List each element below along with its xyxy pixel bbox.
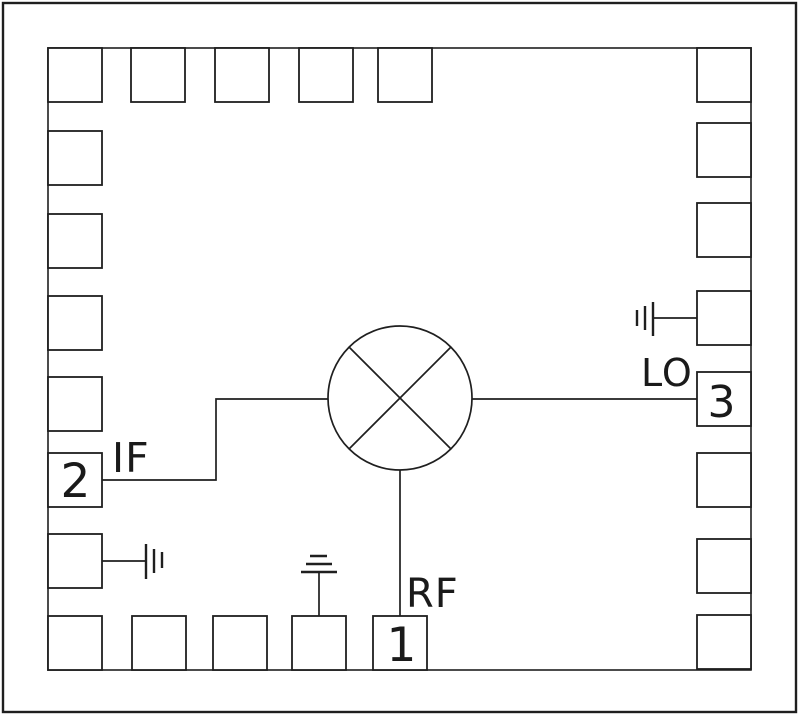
pad: [697, 615, 751, 669]
pad: [697, 123, 751, 177]
pin-number-2: 2: [61, 454, 92, 509]
pad: [213, 616, 267, 670]
pad: [299, 48, 353, 102]
port-label-lo: LO: [641, 351, 693, 395]
pad: [48, 534, 102, 588]
schematic-canvas: IF LO RF 2 3 1: [0, 0, 800, 718]
pad: [697, 48, 751, 102]
pad: [131, 48, 185, 102]
pad: [48, 377, 102, 431]
pad: [48, 616, 102, 670]
port-label-if: IF: [112, 434, 150, 482]
pad: [48, 214, 102, 268]
pad: [378, 48, 432, 102]
pad: [292, 616, 346, 670]
pin-number-1: 1: [387, 618, 418, 673]
pad: [48, 131, 102, 185]
schematic-page: IF LO RF 2 3 1: [0, 0, 800, 718]
port-label-rf: RF: [406, 571, 459, 617]
pad: [48, 48, 102, 102]
pad: [697, 453, 751, 507]
pad: [48, 296, 102, 350]
pin-number-3: 3: [708, 377, 737, 428]
pad: [697, 539, 751, 593]
pad: [132, 616, 186, 670]
pad: [697, 291, 751, 345]
pad: [697, 203, 751, 257]
pad: [215, 48, 269, 102]
